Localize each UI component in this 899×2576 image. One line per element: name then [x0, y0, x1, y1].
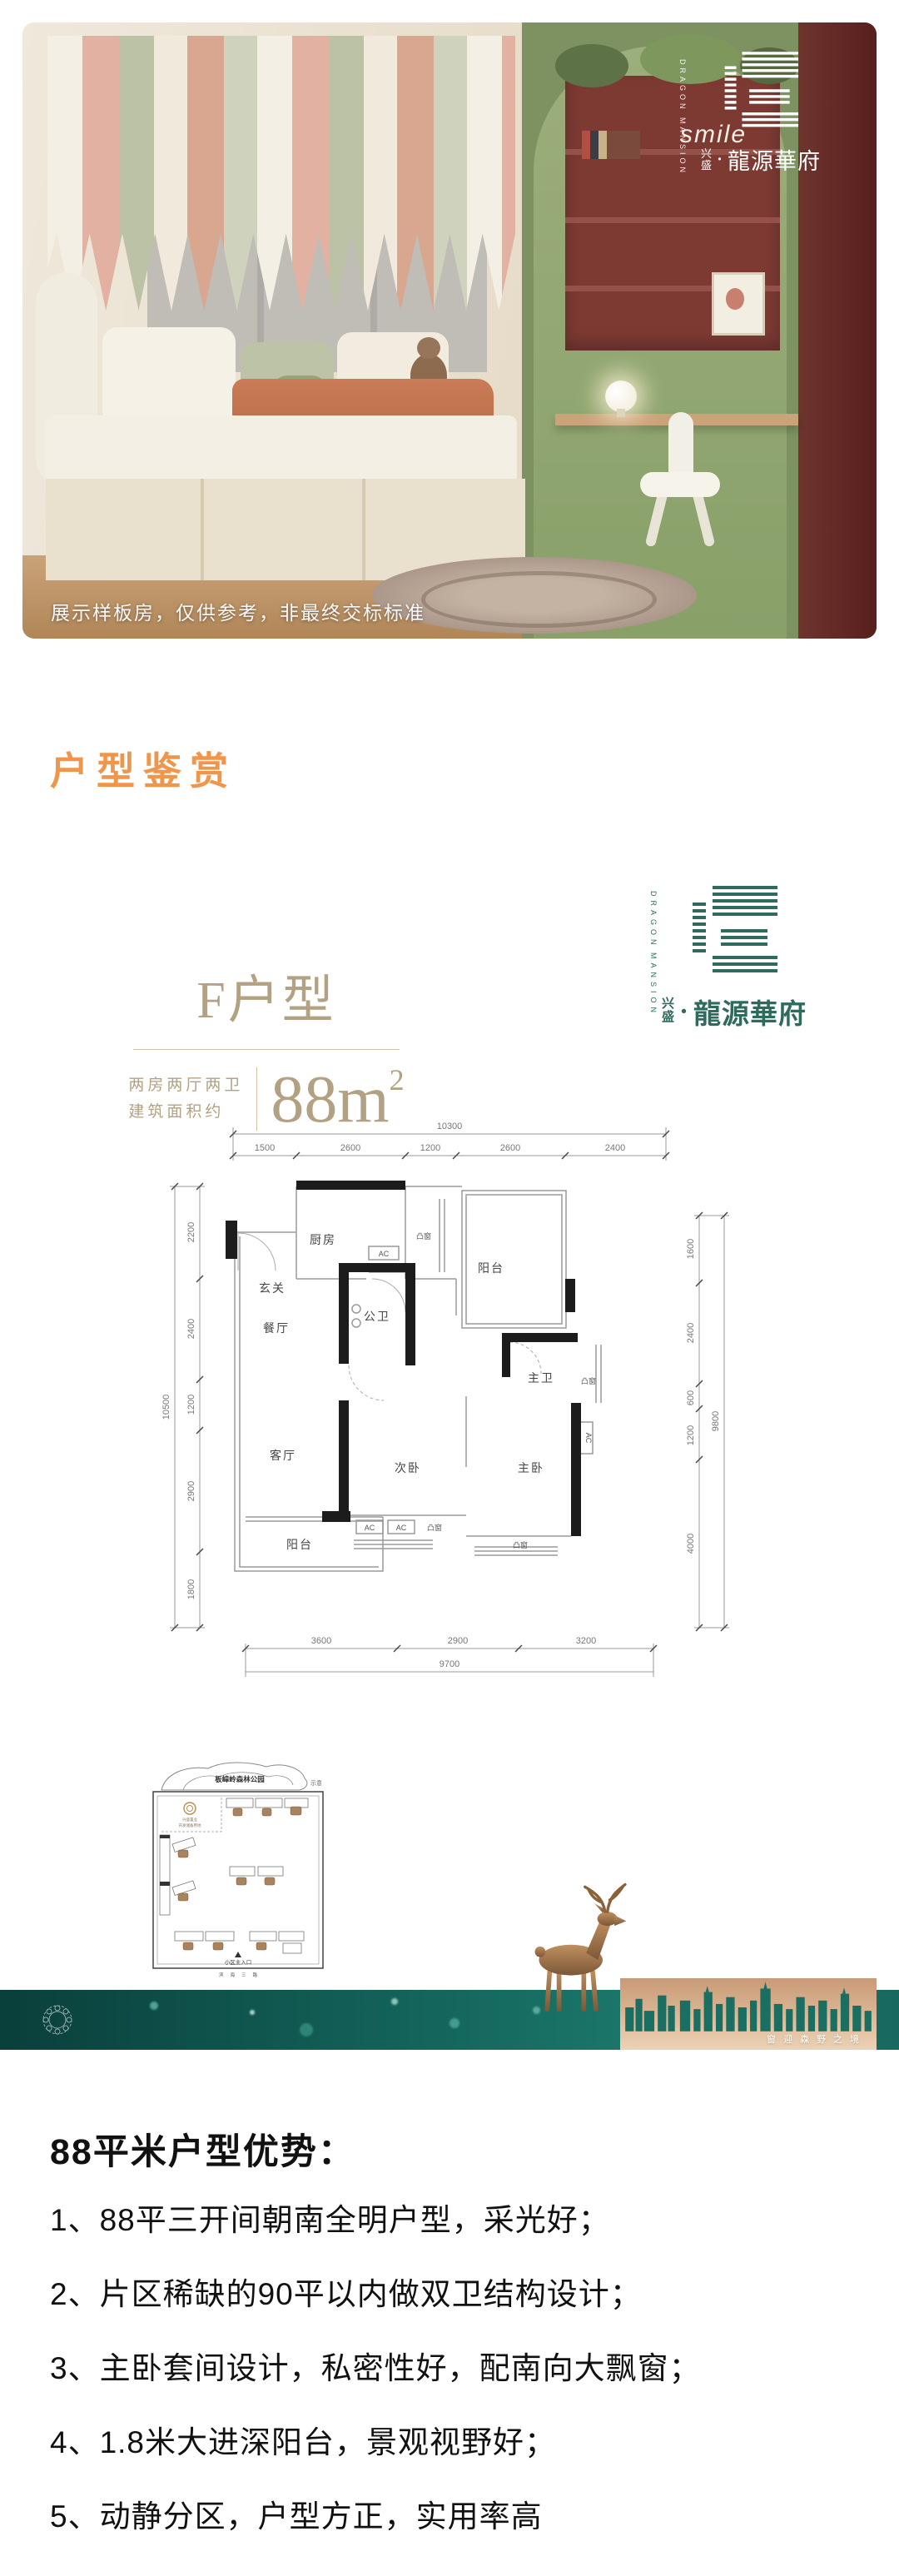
svg-text:2900: 2900: [186, 1481, 196, 1501]
advantage-item: 2、片区稀缺的90平以内做双卫结构设计；: [50, 2279, 857, 2310]
brand-banner: 窗迎森野之境: [0, 1990, 899, 2050]
room-balcony-north: 阳台: [478, 1261, 504, 1275]
svg-text:1800: 1800: [186, 1579, 196, 1599]
promo-page: smile DRAGON MANSION: [0, 0, 899, 2576]
daybed-mattress: [46, 415, 517, 484]
plot-label-2: 开发储备用地: [179, 1823, 201, 1828]
svg-text:2900: 2900: [448, 1636, 468, 1646]
advantage-item: 3、主卧套间设计，私密性好，配南向大飘窗；: [50, 2353, 857, 2384]
svg-text:2400: 2400: [605, 1143, 625, 1153]
dimension-lines: [170, 1127, 729, 1677]
svg-text:10300: 10300: [437, 1121, 463, 1131]
park-label: 板嶂岭森林公园: [215, 1775, 265, 1783]
unit-type-name: F户型: [125, 957, 408, 1032]
room-entry: 玄关: [259, 1281, 286, 1295]
bay-window-label: 凸窗: [427, 1523, 442, 1532]
room-master-bath: 主卫: [528, 1371, 554, 1385]
section-title: 户型鉴赏: [50, 741, 236, 796]
photo-disclaimer: 展示样板房，仅供参考，非最终交标标准: [51, 597, 425, 625]
picture-frame: [712, 272, 765, 336]
svg-text:3600: 3600: [311, 1636, 331, 1646]
svg-text:1200: 1200: [686, 1425, 696, 1445]
ac-label: AC: [396, 1524, 407, 1532]
plot-label-1: 兴盛置业: [182, 1817, 197, 1823]
svg-text:3200: 3200: [576, 1636, 596, 1646]
sphere-lamp: [605, 380, 637, 412]
bay-window-label: 凸窗: [416, 1231, 431, 1241]
cushion: [102, 327, 236, 425]
room-living: 客厅: [270, 1449, 296, 1462]
svg-text:2600: 2600: [340, 1143, 360, 1153]
hero-brand-logo: DRAGON MANSION 兴盛: [673, 47, 848, 176]
brand-cn-name: 兴盛 ·龍源華府: [673, 143, 848, 176]
deer-icon: [499, 1877, 649, 2019]
dimension-labels: 10300 1500 2600 1200 2600 2400 10500 220…: [161, 1121, 721, 1669]
svg-text:600: 600: [686, 1390, 696, 1405]
plant: [555, 44, 628, 87]
brand-en-vertical: DRAGON MANSION: [678, 59, 687, 176]
showroom-photo: smile DRAGON MANSION: [22, 22, 877, 639]
siteplan-drawing: 板嶂岭森林公园 示意 兴盛置业 开发储备用地 小区主入口: [150, 1758, 333, 1983]
room-dining: 餐厅: [263, 1321, 290, 1335]
room-kitchen: 厨房: [310, 1233, 336, 1246]
svg-text:1600: 1600: [686, 1239, 696, 1259]
brand-e-glyph-icon: [718, 47, 804, 134]
svg-text:2400: 2400: [186, 1319, 196, 1339]
plan-brand-logo: DRAGONMANSION 兴盛 ·龍源華府: [634, 881, 834, 1032]
ac-label: AC: [365, 1524, 375, 1532]
structural-walls: [226, 1181, 581, 1536]
svg-text:1200: 1200: [186, 1395, 196, 1415]
rosette-ornament-icon: [37, 2000, 77, 2040]
road-label: 滨海三路: [219, 1972, 264, 1978]
bay-window-label: 凸窗: [581, 1376, 596, 1385]
advantage-item: 5、动静分区，户型方正，实用率高: [50, 2501, 857, 2532]
skyline-card: 窗迎森野之境: [620, 1978, 877, 2050]
floorplan-drawing: 10300 1500 2600 1200 2600 2400 10500 220…: [133, 1107, 766, 1715]
ac-label: AC: [584, 1433, 593, 1444]
svg-text:1500: 1500: [255, 1143, 275, 1153]
svg-text:9800: 9800: [711, 1411, 721, 1431]
brand-e-glyph-icon: [684, 881, 784, 981]
dimension-ticks: [171, 1131, 728, 1652]
ac-label: AC: [379, 1250, 390, 1258]
divider-line: [133, 1049, 400, 1050]
advantages-title: 88平米户型优势：: [50, 2123, 857, 2175]
room-guest-bath: 公卫: [364, 1310, 390, 1323]
room-balcony-south: 阳台: [286, 1538, 313, 1551]
svg-text:1200: 1200: [420, 1143, 440, 1153]
room-master-bed: 主卧: [518, 1461, 544, 1474]
brand-en-vertical: DRAGONMANSION: [649, 891, 658, 1017]
advantage-item: 4、1.8米大进深阳台，景观视野好；: [50, 2427, 857, 2458]
svg-text:2400: 2400: [686, 1323, 696, 1343]
room-second-bed: 次卧: [395, 1461, 421, 1474]
banner-slogan: 窗迎森野之境: [767, 2032, 867, 2046]
schematic-note: 示意: [310, 1779, 322, 1787]
svg-text:2200: 2200: [186, 1222, 196, 1242]
advantage-item: 1、88平三开间朝南全明户型，采光好；: [50, 2205, 857, 2235]
entrance-label: 小区主入口: [225, 1958, 252, 1966]
svg-text:10500: 10500: [161, 1395, 171, 1420]
lamp-base: [617, 409, 625, 417]
svg-text:2600: 2600: [500, 1143, 520, 1153]
svg-text:9700: 9700: [440, 1659, 459, 1669]
svg-text:4000: 4000: [686, 1534, 696, 1554]
advantages-section: 88平米户型优势： 1、88平三开间朝南全明户型，采光好； 2、片区稀缺的90平…: [50, 2123, 857, 2575]
bay-window-label: 凸窗: [513, 1540, 528, 1549]
brand-cn-name: 兴盛 ·龍源華府: [634, 992, 834, 1032]
city-skyline-icon: [620, 1980, 877, 2031]
books-decor: [582, 131, 640, 159]
chair-seat: [640, 472, 720, 497]
